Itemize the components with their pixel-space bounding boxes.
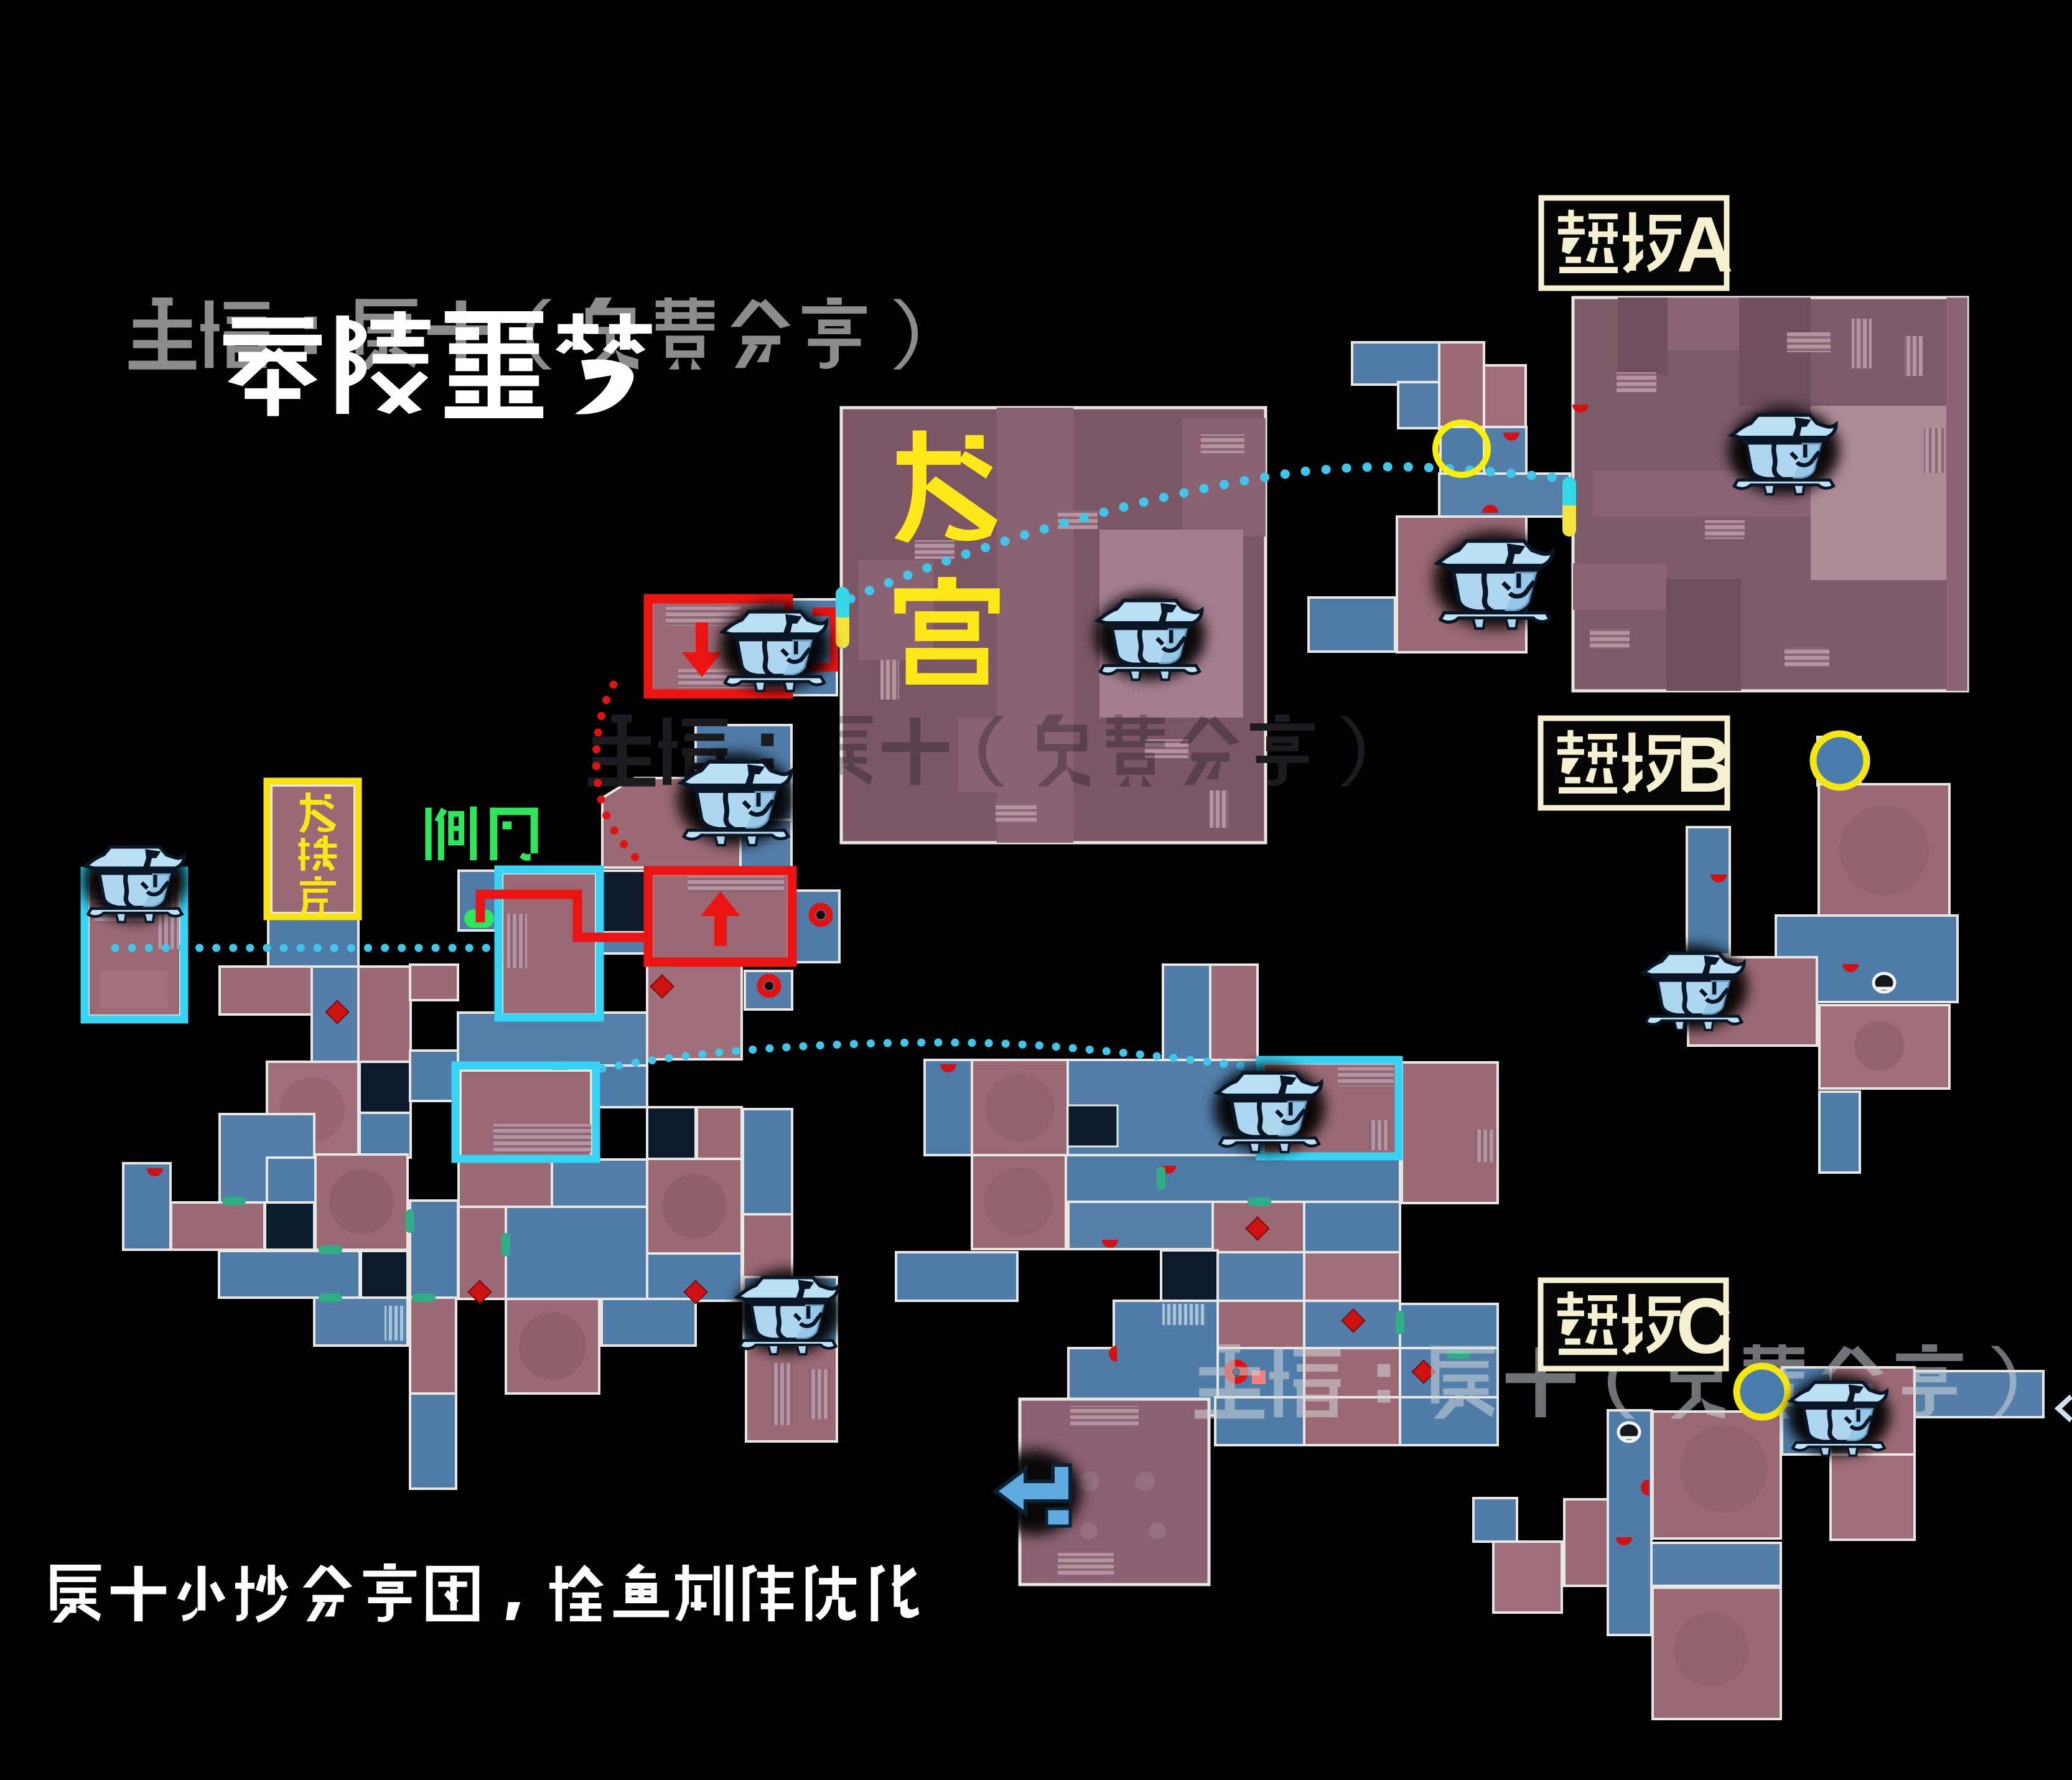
svg-text:A: A <box>1677 200 1734 288</box>
svg-text:B: B <box>1676 721 1733 808</box>
svg-text:C: C <box>1676 1282 1733 1370</box>
